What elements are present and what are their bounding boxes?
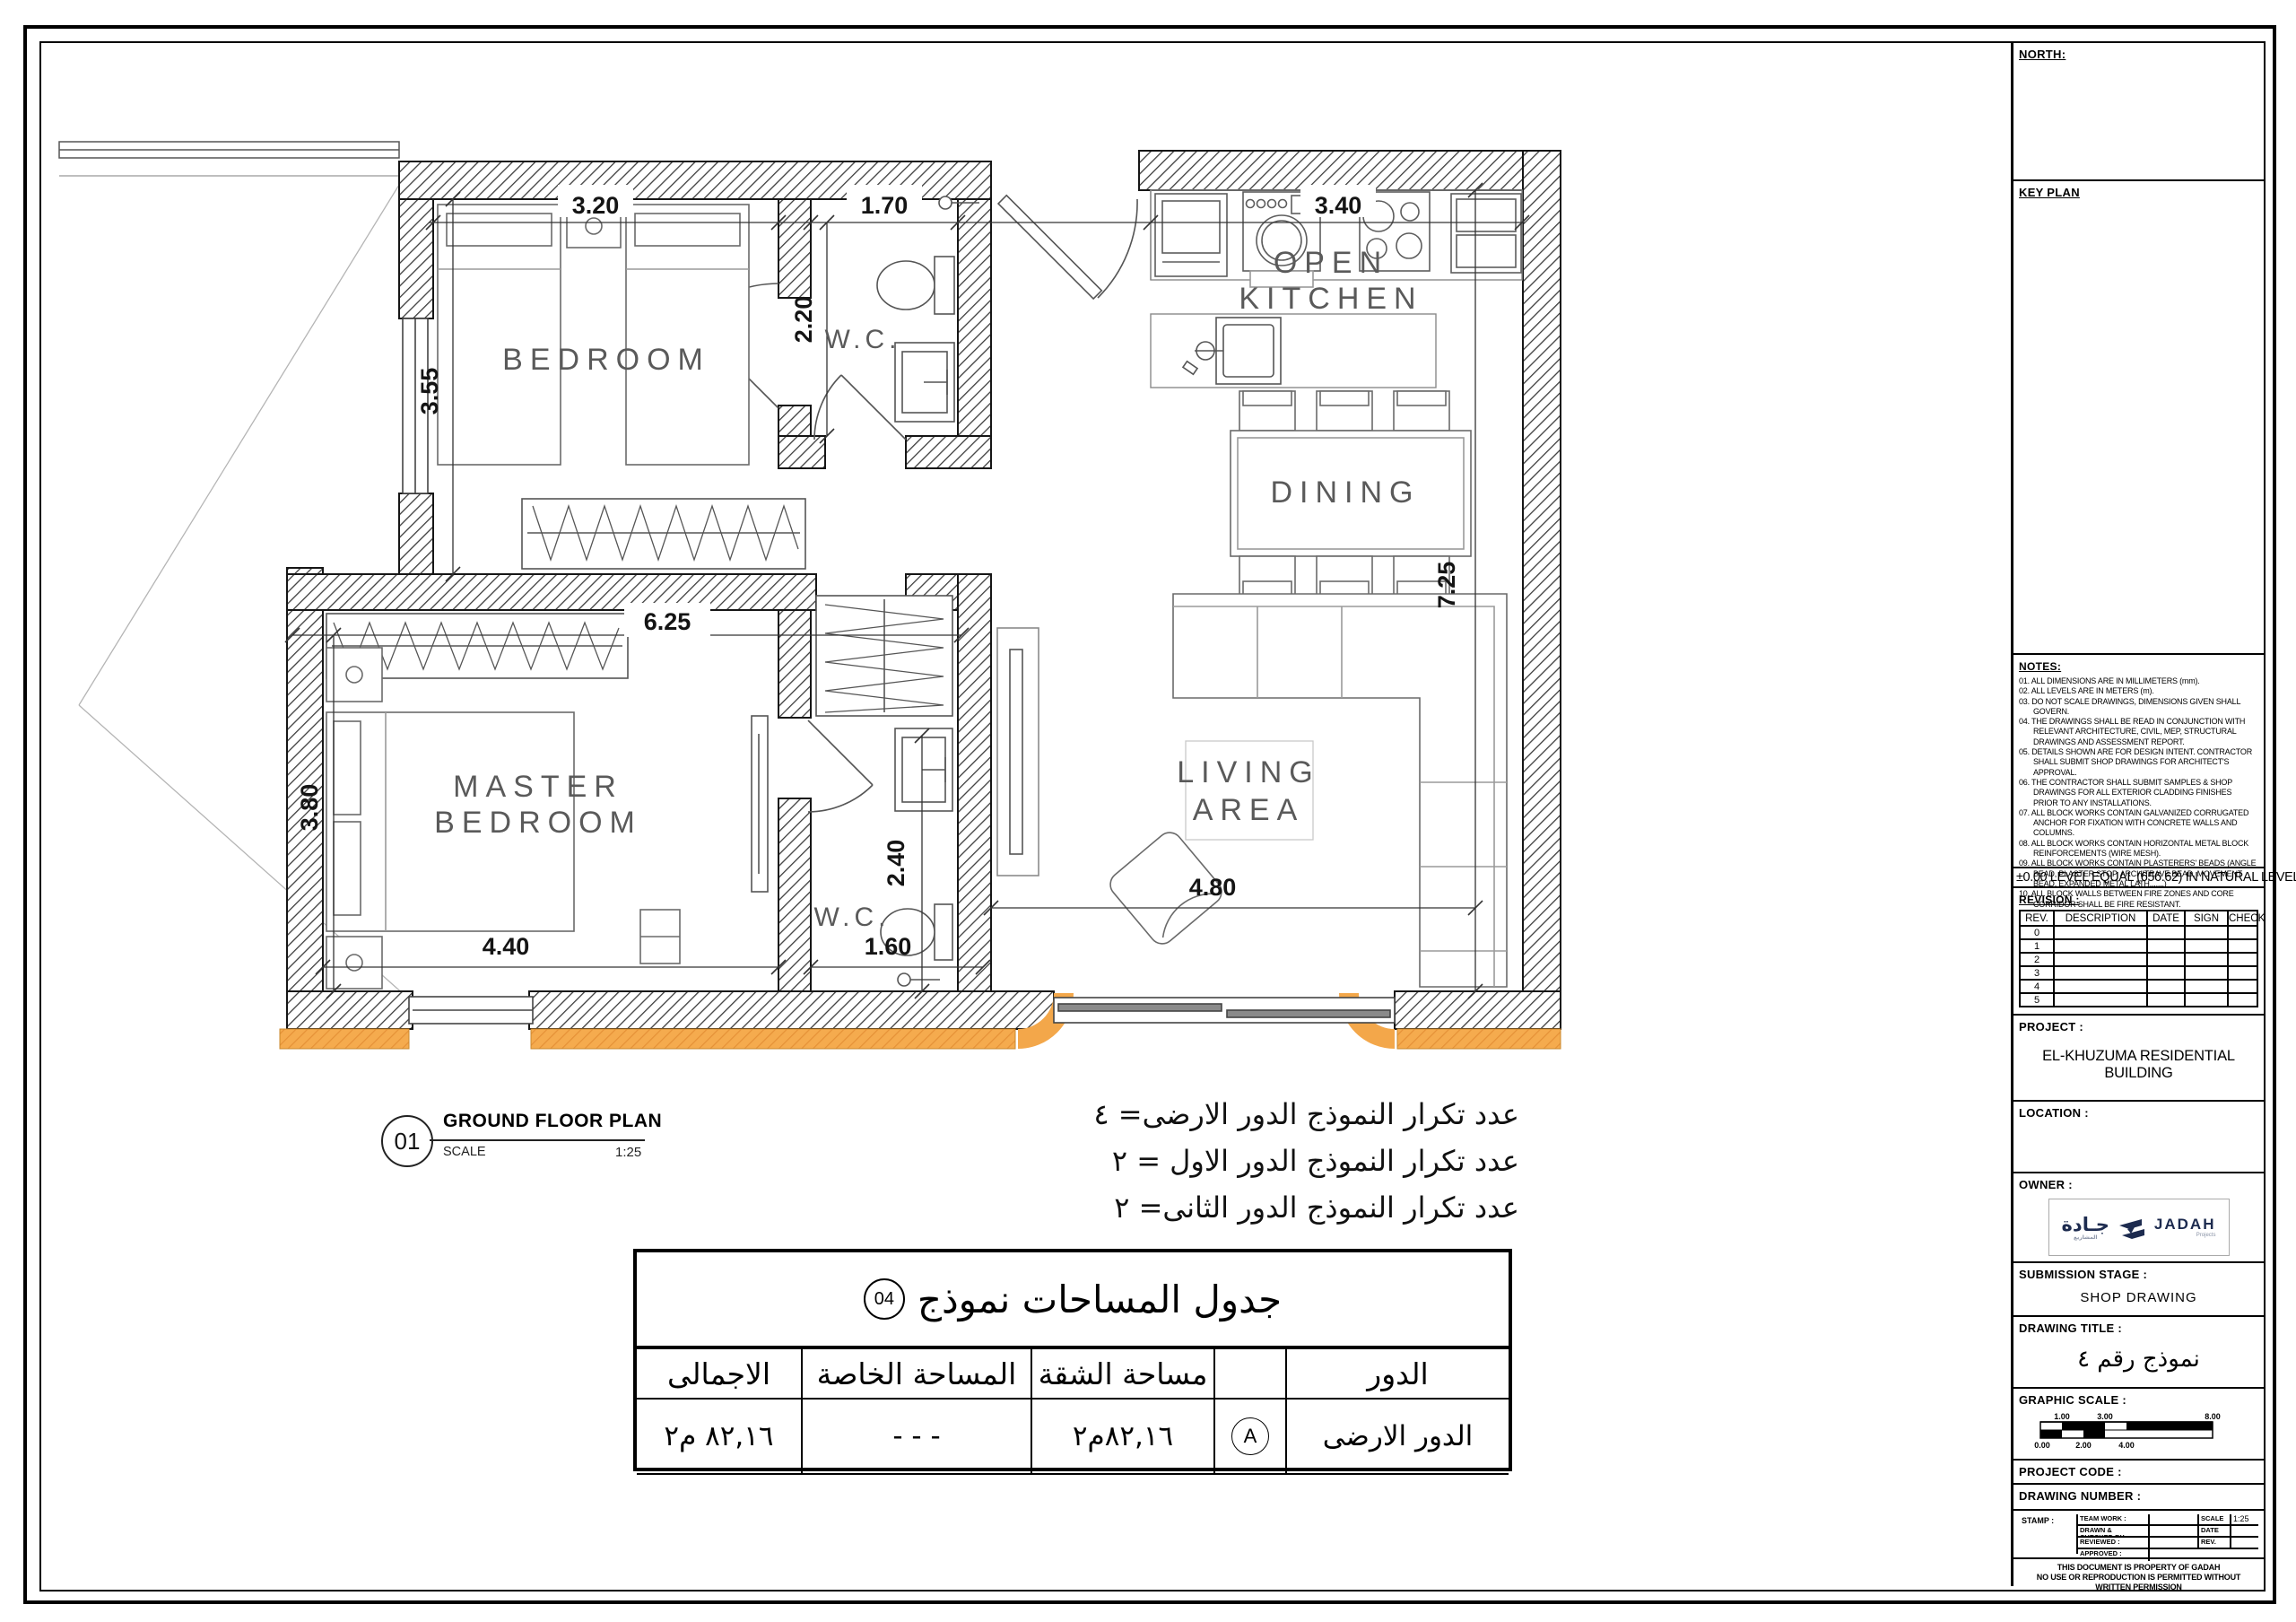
owner-label: OWNER : (2019, 1178, 2073, 1191)
team-work-label: TEAM WORK : (2078, 1514, 2150, 1526)
note-item: 01. ALL DIMENSIONS ARE IN MILLIMETERS (m… (2019, 676, 2258, 686)
project-code-section: PROJECT CODE : (2013, 1461, 2264, 1485)
date-col: DATE (2147, 911, 2185, 926)
adjacent-window (59, 142, 399, 176)
dim-right-height: 7.25 (1433, 562, 1460, 609)
note-item: 06. THE CONTRACTOR SHALL SUBMIT SAMPLES … (2019, 778, 2258, 808)
living-sofa (1173, 594, 1507, 987)
logo-arabic: جـادة المشاريع (2062, 1215, 2109, 1241)
key-plan-section: KEY PLAN (2013, 181, 2264, 655)
room-label-kitchen-1: OPEN (1274, 246, 1388, 280)
dim-living-width: 4.80 (1189, 874, 1237, 901)
graphic-scale-bar: 1.00 3.00 8.00 0.00 2.00 4.00 (2019, 1408, 2261, 1452)
master-desk (640, 910, 680, 964)
revision-row: 3 (2020, 966, 2257, 980)
note-item: 03. DO NOT SCALE DRAWINGS, DIMENSIONS GI… (2019, 697, 2258, 718)
room-label-bedroom: BEDROOM (502, 343, 710, 377)
revision-row: 1 (2020, 939, 2257, 953)
note-item: 02. ALL LEVELS ARE IN METERS (m). (2019, 686, 2258, 696)
rev-value (2231, 1538, 2258, 1549)
revision-row: 5 (2020, 993, 2257, 1007)
logo-arabic-text: جـادة (2062, 1215, 2109, 1234)
north-section: NORTH: (2013, 43, 2264, 181)
cell-apartment-area: ٨٢,١٦م٢ (1031, 1399, 1214, 1474)
bedroom-wardrobe (522, 499, 805, 569)
drawing-number-label: DRAWING NUMBER : (2019, 1489, 2141, 1503)
empty-cell (2185, 993, 2228, 1007)
empty-cell (2147, 953, 2185, 966)
scale-tick: 2.00 (2075, 1441, 2092, 1450)
drawing-sheet: 3.20 1.70 3.40 3.55 2.20 6.25 3.80 4.40 … (0, 0, 2296, 1622)
dim-block-width: 6.25 (644, 608, 691, 635)
project-label: PROJECT : (2019, 1020, 2083, 1033)
kitchen-cabinet (1451, 194, 1521, 273)
bedroom-furniture (438, 205, 749, 465)
empty-cell (2147, 926, 2185, 939)
location-section: LOCATION : (2013, 1102, 2264, 1173)
header-total: الاجمالى (637, 1348, 802, 1399)
repeat-note-second: عدد تكرار النموذج الدور الثانى= ٢ (1139, 1184, 1519, 1231)
callout-number: 01 (381, 1115, 433, 1167)
room-label-wc-top: W.C. (825, 325, 901, 354)
revision-section: REVISION : REV. DESCRIPTION DATE SIGN CH… (2013, 888, 2264, 1016)
rev-num: 5 (2020, 993, 2054, 1007)
tag-circle: A (1231, 1417, 1269, 1455)
room-label-master-1: MASTER (453, 770, 623, 804)
area-table-title-row: جدول المساحات نموذج 04 (637, 1252, 1509, 1347)
dim-master-width: 4.40 (483, 933, 530, 960)
graphic-scale-label: GRAPHIC SCALE : (2019, 1393, 2126, 1407)
header-tag (1214, 1348, 1286, 1399)
project-code-label: PROJECT CODE : (2019, 1465, 2122, 1478)
dim-kitchen-width: 3.40 (1315, 192, 1362, 219)
callout-divider (430, 1139, 645, 1141)
submission-section: SUBMISSION STAGE : SHOP DRAWING (2013, 1263, 2264, 1317)
empty-cell (2185, 926, 2228, 939)
master-tv-icon (752, 716, 768, 892)
description-col: DESCRIPTION (2054, 911, 2147, 926)
rev-num: 1 (2020, 939, 2054, 953)
revision-label: REVISION : (2019, 894, 2080, 906)
empty-cell (2185, 939, 2228, 953)
note-item: 05. DETAILS SHOWN ARE FOR DESIGN INTENT.… (2019, 747, 2258, 778)
room-label-living-1: LIVING (1177, 755, 1319, 789)
dim-bedroom-width: 3.20 (572, 192, 620, 219)
living-tv-icon (997, 628, 1039, 876)
rev-num: 2 (2020, 953, 2054, 966)
logo-latin: JADAH Projects (2154, 1216, 2216, 1239)
room-label-wc-bottom: W.C. (814, 903, 891, 932)
footer-line-2: NO USE OR REPRODUCTION IS PERMITTED WITH… (2019, 1573, 2258, 1592)
dim-wc-top-width: 1.70 (861, 192, 909, 219)
graphic-scale-section: GRAPHIC SCALE : 1.00 3.00 8.00 0.00 2.00… (2013, 1389, 2264, 1461)
dim-master-height: 3.80 (296, 784, 323, 832)
area-table-header-row: الدور مساحة الشقة المساحة الخاصة الاجمال… (637, 1348, 1509, 1399)
empty-cell (2228, 926, 2257, 939)
location-label: LOCATION : (2019, 1106, 2089, 1120)
rev-col: REV. (2020, 911, 2054, 926)
empty-cell (2228, 980, 2257, 993)
rev-num: 4 (2020, 980, 2054, 993)
key-plan-label: KEY PLAN (2019, 186, 2080, 199)
sign-col: SIGN (2185, 911, 2228, 926)
footer-line-1: THIS DOCUMENT IS PROPERTY OF GADAH (2019, 1563, 2258, 1573)
submission-label: SUBMISSION STAGE : (2019, 1268, 2147, 1281)
dim-wc-bottom-width: 1.60 (865, 933, 912, 960)
callout-scale-label: SCALE (443, 1145, 486, 1159)
dim-wc-bottom-height: 2.40 (883, 840, 909, 887)
room-label-living-2: AREA (1193, 793, 1305, 827)
logo-latin-text: JADAH (2154, 1216, 2216, 1233)
reviewed-label: REVIEWED : (2078, 1538, 2150, 1549)
header-private-area: المساحة الخاصة (802, 1348, 1031, 1399)
repeat-note-ground: عدد تكرار النموذج الدور الارضى= ٤ (1139, 1091, 1519, 1138)
repeat-note-first: عدد تكرار النموذج الدور الاول = ٢ (1139, 1138, 1519, 1184)
revision-row: 0 (2020, 926, 2257, 939)
owner-section: OWNER : جـادة المشاريع JADAH Projects (2013, 1173, 2264, 1263)
jadah-logo-icon (2117, 1214, 2147, 1241)
stamp-section: STAMP : TEAM WORK : SCALE 1:25 DRAWN & C… (2013, 1511, 2264, 1559)
drawing-number-section: DRAWING NUMBER : (2013, 1485, 2264, 1511)
dim-bedroom-height: 3.55 (416, 368, 443, 415)
logo-arabic-sub: المشاريع (2062, 1234, 2109, 1241)
empty-cell (2054, 966, 2147, 980)
revision-row: 4 (2020, 980, 2257, 993)
empty-cell (2147, 966, 2185, 980)
empty-cell (2054, 926, 2147, 939)
check-col: CHECK (2228, 911, 2257, 926)
callout-title: GROUND FLOOR PLAN (443, 1111, 662, 1132)
north-label: NORTH: (2019, 48, 2066, 61)
kitchen-island (1151, 314, 1436, 388)
revision-header-row: REV. DESCRIPTION DATE SIGN CHECK (2020, 911, 2257, 926)
empty-cell (2054, 993, 2147, 1007)
scale-tick: 3.00 (2097, 1412, 2113, 1421)
drawing-title-label: DRAWING TITLE : (2019, 1321, 2122, 1335)
title-block: NORTH: KEY PLAN NOTES: 01. ALL DIMENSION… (2011, 43, 2264, 1586)
rev-num: 0 (2020, 926, 2054, 939)
project-section: PROJECT : EL-KHUZUMA RESIDENTIAL BUILDIN… (2013, 1016, 2264, 1102)
scale-tick: 0.00 (2034, 1441, 2050, 1450)
drawing-title-value: نموذج رقم ٤ (2019, 1346, 2258, 1373)
empty-cell (2054, 980, 2147, 993)
empty-cell (2228, 953, 2257, 966)
callout-scale-value: 1:25 (615, 1145, 641, 1160)
scale-value: 1:25 (2231, 1514, 2258, 1526)
fridge-icon (1155, 194, 1227, 276)
logo-latin-sub: Projects (2154, 1233, 2216, 1239)
room-label-master-2: BEDROOM (434, 806, 642, 840)
scale-tick: 4.00 (2118, 1441, 2135, 1450)
note-item: 07. ALL BLOCK WORKS CONTAIN GALVANIZED C… (2019, 808, 2258, 839)
drawn-checked-label: DRAWN & CHECKED BY: (2078, 1526, 2150, 1538)
empty-cell (2228, 939, 2257, 953)
revision-row: 2 (2020, 953, 2257, 966)
scale-label: SCALE (2199, 1514, 2231, 1526)
notes-section: NOTES: 01. ALL DIMENSIONS ARE IN MILLIME… (2013, 655, 2264, 888)
empty-cell (2147, 939, 2185, 953)
cell-floor: الدور الارضى (1286, 1399, 1509, 1474)
rev-num: 3 (2020, 966, 2054, 980)
empty-cell (2185, 980, 2228, 993)
stamp-label: STAMP : (2019, 1514, 2078, 1554)
scale-tick: 1.00 (2054, 1412, 2070, 1421)
team-work-value (2150, 1514, 2199, 1526)
note-item: 08. ALL BLOCK WORKS CONTAIN HORIZONTAL M… (2019, 839, 2258, 859)
date-label: DATE (2199, 1526, 2231, 1538)
area-table-badge: 04 (864, 1278, 905, 1320)
empty-cell (2054, 939, 2147, 953)
notes-label: NOTES: (2019, 660, 2061, 673)
owner-logo: جـادة المشاريع JADAH Projects (2048, 1199, 2230, 1256)
dim-wc-top-height: 2.20 (790, 296, 817, 344)
rev-label: REV. (2199, 1538, 2231, 1549)
reviewed-value (2150, 1538, 2199, 1549)
empty-cell (2228, 993, 2257, 1007)
empty-cell (2147, 980, 2185, 993)
area-table-title: جدول المساحات نموذج (918, 1278, 1282, 1321)
header-apartment-area: مساحة الشقة (1031, 1348, 1214, 1399)
empty-cell (2054, 953, 2147, 966)
island-sink-icon (1183, 318, 1281, 384)
date-value (2231, 1526, 2258, 1538)
revision-table: REV. DESCRIPTION DATE SIGN CHECK 0 1 2 3… (2019, 910, 2258, 1007)
room-label-kitchen-2: KITCHEN (1239, 282, 1422, 316)
empty-cell (2228, 966, 2257, 980)
submission-value: SHOP DRAWING (2019, 1290, 2258, 1305)
empty-cell (2185, 966, 2228, 980)
stamp-grid: TEAM WORK : SCALE 1:25 DRAWN & CHECKED B… (2078, 1514, 2258, 1554)
empty-cell (2147, 993, 2185, 1007)
cell-tag: A (1214, 1399, 1286, 1474)
room-label-dining: DINING (1271, 475, 1421, 510)
level-note: ±0.00 LEVEL EQUAL (656.62) IN NATURAL LE… (2013, 867, 2264, 886)
cell-total: ٨٢,١٦ م٢ (637, 1399, 802, 1474)
drawing-title-section: DRAWING TITLE : نموذج رقم ٤ (2013, 1317, 2264, 1389)
area-table-row: الدور الارضى A ٨٢,١٦م٢ - - - ٨٢,١٦ م٢ (637, 1399, 1509, 1474)
note-item: 04. THE DRAWINGS SHALL BE READ IN CONJUN… (2019, 717, 2258, 747)
header-floor: الدور (1286, 1348, 1509, 1399)
drawn-checked-value (2150, 1526, 2199, 1538)
footer-section: THIS DOCUMENT IS PROPERTY OF GADAH NO US… (2013, 1559, 2264, 1586)
area-table: جدول المساحات نموذج 04 الدور مساحة الشقة… (633, 1249, 1512, 1471)
project-name: EL-KHUZUMA RESIDENTIAL BUILDING (2019, 1048, 2258, 1082)
repeat-notes: عدد تكرار النموذج الدور الارضى= ٤ عدد تك… (1139, 1091, 1519, 1231)
scale-tick: 8.00 (2205, 1412, 2221, 1421)
cell-private-area: - - - (802, 1399, 1031, 1474)
empty-cell (2185, 953, 2228, 966)
